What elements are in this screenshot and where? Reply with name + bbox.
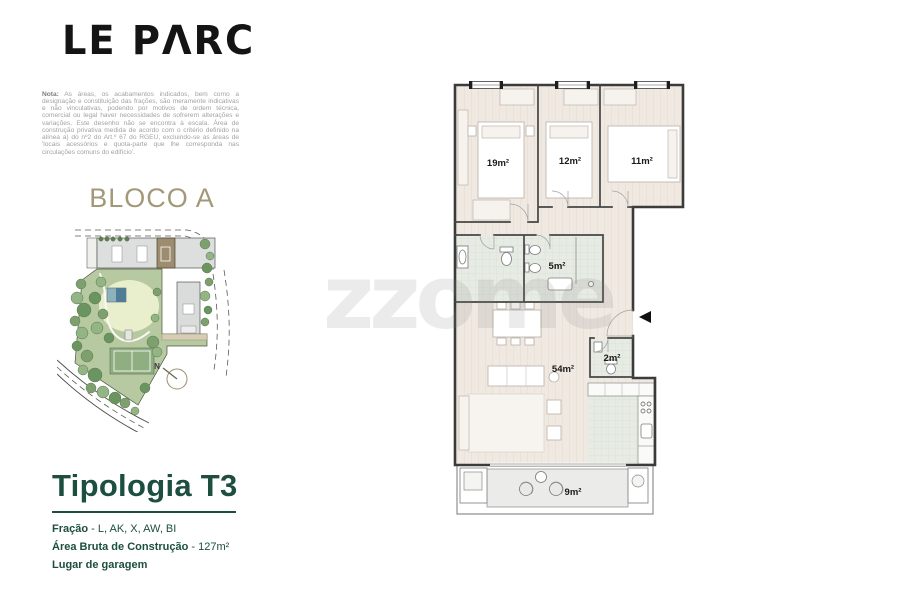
disclaimer-note: Nota: As áreas, os acabamentos indicados… xyxy=(42,91,239,156)
title-underline xyxy=(52,511,236,513)
block-a-highlight xyxy=(157,238,175,268)
room-label-living: 54m² xyxy=(552,364,574,375)
room-label-bedroom-1: 19m² xyxy=(487,158,509,169)
room-label-bedroom-3: 11m² xyxy=(631,156,653,167)
entrance-arrow-icon xyxy=(639,311,651,323)
note-label: Nota: xyxy=(42,91,59,98)
detail-fracao: Fração - L, AK, X, AW, BI xyxy=(52,520,229,538)
brochure-page: LE PΛRC Nota: As áreas, os acabamentos i… xyxy=(0,0,900,597)
detail-garagem: Lugar de garagem xyxy=(52,556,229,574)
typology-title: Tipologia T3 xyxy=(52,468,238,504)
room-label-bathroom: 5m² xyxy=(549,261,566,272)
room-label-wc: 2m² xyxy=(604,353,621,364)
typology-details: Fração - L, AK, X, AW, BI Área Bruta de … xyxy=(52,520,229,574)
balcony xyxy=(457,465,653,514)
detail-value: 127m² xyxy=(198,541,229,553)
block-title: BLOCO A xyxy=(57,183,247,214)
detail-value: L, AK, X, AW, BI xyxy=(98,523,176,535)
room-label-bedroom-2: 12m² xyxy=(559,156,581,167)
detail-separator: - xyxy=(188,541,198,553)
compass-label: N xyxy=(154,362,160,371)
note-text: As áreas, os acabamentos indicados, bem … xyxy=(42,91,239,156)
detail-label: Lugar de garagem xyxy=(52,559,147,571)
detail-separator: - xyxy=(88,523,98,535)
detail-label: Fração xyxy=(52,523,88,535)
room-label-balcony: 9m² xyxy=(565,487,582,498)
windows xyxy=(469,81,670,89)
site-plan: N xyxy=(57,222,247,432)
floor-plan: 19m² 12m² 11m² 5m² 54m² 2m² 9m² xyxy=(440,70,700,540)
tennis-court xyxy=(110,348,154,374)
detail-area: Área Bruta de Construção - 127m² xyxy=(52,538,229,556)
brand-logo: LE PΛRC xyxy=(62,18,255,64)
detail-label: Área Bruta de Construção xyxy=(52,541,188,553)
compass: N xyxy=(154,362,187,389)
